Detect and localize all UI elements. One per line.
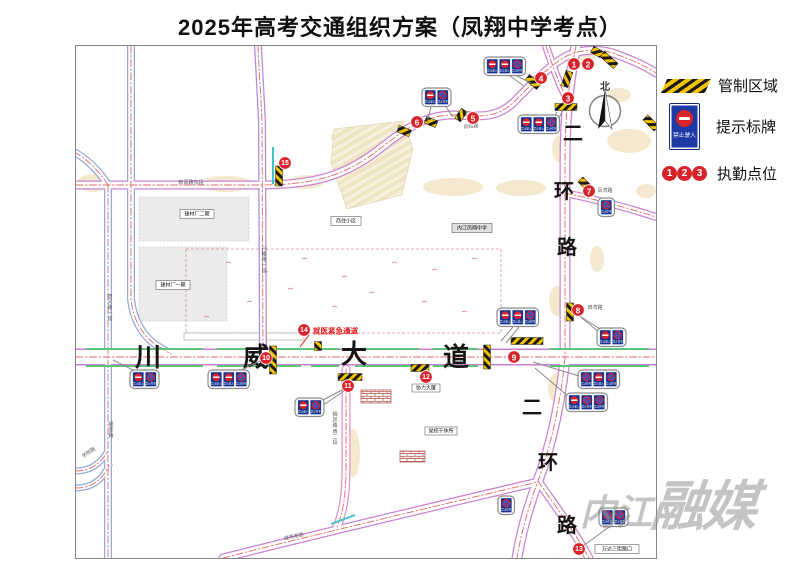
no-parking-sign-icon: 禁止停车 — [581, 395, 592, 410]
duty-point-sample-icons: 1 2 3 — [662, 166, 707, 181]
sign-caption-text: 禁止停车 — [525, 320, 536, 324]
ring-road-name-char: 二 — [522, 397, 542, 419]
duty-point-number: 7 — [587, 186, 592, 196]
compass: 北 — [590, 80, 621, 129]
no-entry-sign-icon: 禁止驶入 — [533, 117, 544, 132]
no-entry-sign-icon: 禁止驶入 — [669, 103, 700, 150]
legend: 管制区域 禁止驶入 提示标牌 1 2 3 执勤点位 — [660, 45, 800, 245]
avenue-name-char: 川 — [135, 342, 161, 372]
no-parking-sign-icon: 禁止停车 — [501, 498, 512, 513]
place-label-text: 党校干休所 — [428, 427, 453, 434]
terrain-mark — [369, 292, 374, 293]
duty-point-10: 10 — [260, 352, 273, 365]
sign-leader-line — [583, 527, 609, 546]
sign-caption-text: 禁止停车 — [613, 340, 624, 344]
duty-point-number: 4 — [539, 73, 544, 83]
no-parking-sign-icon: 禁止停车 — [546, 117, 557, 132]
no-entry-caption: 禁止驶入 — [671, 130, 699, 139]
no-parking-sign-icon: 禁止停车 — [606, 372, 617, 387]
sign-caption-text: 禁止停车 — [438, 100, 449, 104]
duty-point-number: 6 — [415, 117, 420, 127]
ring-road-name-char: 环 — [554, 181, 574, 203]
sign-caption-text: 禁止停车 — [512, 69, 523, 73]
emergency-route-text: 就医紧急通道 — [313, 326, 358, 336]
sign-caption-text: 禁止停车 — [311, 410, 322, 414]
watermark-large: 融媒 — [648, 462, 760, 541]
building-outline — [184, 333, 304, 340]
terrain-mark — [432, 269, 437, 270]
no-entry-sign-icon: 禁止驶入 — [512, 310, 523, 325]
no-entry-sign-icon: 禁止驶入 — [211, 372, 222, 387]
duty-point-13: 13 — [573, 543, 586, 556]
no-parking-sign-icon: 禁止停车 — [602, 510, 613, 525]
sign-leader-line — [510, 76, 524, 86]
duty-point-sample-1: 1 — [662, 166, 677, 181]
duty-point-6: 6 — [411, 116, 424, 129]
sign-caption-text: 禁止驶入 — [600, 340, 611, 344]
no-parking-sign-icon: 禁止停车 — [310, 400, 321, 415]
legend-item-control-area: 管制区域 — [660, 75, 778, 96]
control-hatch-bar — [511, 338, 543, 345]
roadside-area — [607, 129, 651, 153]
sign-caption-text: 禁止停车 — [146, 382, 157, 386]
legend-item-sign-board: 禁止驶入 提示标牌 — [660, 103, 776, 150]
road-label: 凤湾路 — [597, 187, 612, 194]
ring-road-name-char: 环 — [538, 452, 558, 474]
no-parking-sign-icon: 禁止停车 — [525, 310, 536, 325]
duty-point-11: 11 — [342, 380, 355, 393]
duty-point-number: 8 — [576, 305, 581, 315]
sign-caption-text: 禁止停车 — [606, 382, 617, 386]
duty-point-number: 9 — [512, 352, 517, 362]
no-entry-sign-icon: 禁止驶入 — [425, 90, 436, 105]
place-label-text: 建材厂一期 — [160, 281, 185, 288]
sign-caption-text: 禁止停车 — [236, 382, 247, 386]
road-label: 智义路一段 — [107, 293, 112, 322]
place-label-text: 建材厂二期 — [184, 210, 209, 217]
terrain-mark — [422, 301, 427, 302]
place-label-text: 商住小区 — [336, 217, 356, 224]
page-title: 2025年高考交通组织方案（凤翔中学考点） — [0, 10, 800, 42]
no-entry-bar-icon — [679, 117, 690, 121]
no-parking-sign-icon: 禁止停车 — [612, 330, 623, 345]
sign-caption-text: 禁止停车 — [601, 210, 612, 214]
compass-north-label: 北 — [600, 80, 610, 93]
sign-caption-text: 禁止停车 — [546, 127, 557, 131]
control-hatch-bar — [338, 374, 362, 381]
no-parking-sign-icon: 禁止停车 — [145, 372, 156, 387]
sign-caption-text: 禁止停车 — [602, 520, 613, 524]
no-entry-sign-icon: 禁止驶入 — [487, 59, 498, 74]
sign-caption-text: 禁止停车 — [501, 508, 512, 512]
road-label: 田湾路 — [587, 304, 602, 311]
sign-caption-text: 禁止驶入 — [500, 69, 511, 73]
road-label: 银家路 — [108, 421, 113, 439]
building-brick — [400, 451, 425, 462]
legend-label-control-area: 管制区域 — [718, 75, 778, 96]
traffic-map: 川威大道二环路二环路新凤路东段凤鸣路凤湾路田湾路峰鸣老路学院路智义路一段兴隆路一… — [76, 46, 656, 558]
place-label-text: 内江凤翔中学 — [457, 224, 487, 231]
no-parking-sign-icon: 禁止停车 — [601, 200, 612, 215]
road-label: 新凤路东段 — [178, 179, 203, 186]
control-hatch-bar — [555, 104, 577, 111]
legend-label-sign-board: 提示标牌 — [716, 116, 776, 137]
no-entry-sign-icon: 禁止驶入 — [298, 400, 309, 415]
avenue-name-char: 大 — [341, 339, 367, 369]
no-entry-sign-icon: 禁止驶入 — [521, 117, 532, 132]
duty-point-15: 15 — [279, 157, 292, 170]
no-parking-sign-icon: 禁止停车 — [437, 90, 448, 105]
terrain-mark — [472, 258, 477, 259]
road-label: 学院路 — [81, 445, 97, 459]
map-frame: 川威大道二环路二环路新凤路东段凤鸣路凤湾路田湾路峰鸣老路学院路智义路一段兴隆路一… — [75, 45, 657, 559]
terrain-mark — [332, 306, 337, 307]
legend-item-duty-points: 1 2 3 执勤点位 — [660, 163, 777, 184]
sign-caption-text: 禁止驶入 — [513, 320, 524, 324]
traffic-plan-page: 2025年高考交通组织方案（凤翔中学考点） 川威大道二环路二环路新凤路东段凤鸣路… — [0, 0, 800, 573]
duty-point-1: 1 — [568, 58, 581, 71]
duty-point-7: 7 — [583, 185, 596, 198]
duty-point-number: 5 — [471, 113, 476, 123]
no-entry-sign-icon: 禁止驶入 — [569, 395, 580, 410]
sign-caption-text: 禁止驶入 — [133, 382, 144, 386]
duty-point-number: 10 — [262, 355, 270, 362]
duty-point-number: 15 — [281, 160, 289, 167]
avenue-name-char: 道 — [443, 342, 469, 372]
no-parking-sign-icon: 禁止停车 — [614, 510, 625, 525]
legend-label-duty-points: 执勤点位 — [717, 163, 777, 184]
control-hatch-bar — [276, 166, 283, 186]
duty-point-number: 1 — [572, 59, 577, 69]
no-entry-sign-icon: 禁止驶入 — [593, 372, 604, 387]
ring-road-name-char: 路 — [557, 513, 578, 537]
terrain-mark — [462, 311, 467, 312]
roadside-area — [590, 246, 604, 272]
dashed-boundary-area — [186, 249, 501, 333]
place-label-text: 万达三街路口 — [602, 545, 632, 552]
sign-caption-text: 禁止驶入 — [500, 320, 511, 324]
sign-caption-text: 禁止驶入 — [211, 382, 222, 386]
duty-point-number: 3 — [566, 93, 571, 103]
no-entry-circle-icon — [676, 110, 693, 127]
sign-caption-text: 禁止驶入 — [425, 100, 436, 104]
roadside-area — [496, 180, 546, 196]
sign-caption-text: 禁止停车 — [594, 405, 605, 409]
sign-caption-text: 禁止停车 — [581, 382, 592, 386]
sign-caption-text: 禁止停车 — [615, 520, 626, 524]
duty-point-3: 3 — [562, 92, 575, 105]
control-hatch-bar — [484, 345, 491, 369]
sign-caption-text: 禁止驶入 — [521, 127, 532, 131]
control-hatch-bar — [315, 342, 322, 351]
terrain-mark — [342, 276, 347, 277]
place-label-text: 协力大厦 — [416, 384, 436, 391]
duty-point-9: 9 — [508, 351, 521, 364]
sign-caption-text: 禁止驶入 — [534, 127, 545, 131]
no-parking-sign-icon: 禁止停车 — [512, 59, 523, 74]
control-hatch-bar — [643, 115, 656, 131]
duty-point-number: 11 — [344, 383, 352, 390]
duty-point-4: 4 — [535, 72, 548, 85]
terrain-mark — [247, 301, 252, 302]
control-area-hatch-icon — [661, 79, 711, 93]
sign-caption-text: 禁止驶入 — [569, 405, 580, 409]
ring-road-name-char: 二 — [563, 123, 583, 145]
sign-caption-text: 禁止驶入 — [487, 69, 498, 73]
duty-point-12: 12 — [420, 371, 433, 384]
no-parking-sign-icon: 禁止停车 — [236, 372, 247, 387]
roadside-area — [423, 178, 483, 196]
no-entry-sign-icon: 禁止驶入 — [499, 59, 510, 74]
terrain-mark — [302, 258, 307, 259]
duty-point-sample-3: 3 — [692, 166, 707, 181]
duty-point-sample-2: 2 — [677, 166, 692, 181]
sign-caption-text: 禁止驶入 — [298, 410, 309, 414]
duty-point-14: 14 — [298, 324, 311, 337]
sign-caption-text: 禁止驶入 — [594, 382, 605, 386]
duty-point-2: 2 — [582, 58, 595, 71]
building-brick — [361, 390, 391, 403]
sign-caption-text: 禁止停车 — [582, 405, 593, 409]
no-entry-sign-icon: 禁止驶入 — [500, 310, 511, 325]
roadside-area — [636, 184, 656, 198]
gray-block-area — [139, 197, 249, 241]
duty-point-number: 13 — [575, 546, 583, 553]
road-label: 兴隆路一段 — [261, 245, 266, 274]
no-parking-sign-icon: 禁止停车 — [581, 372, 592, 387]
duty-point-number: 14 — [300, 327, 308, 334]
road-label: 栖凤路西二段 — [332, 411, 337, 446]
no-entry-sign-icon: 禁止驶入 — [223, 372, 234, 387]
ring-road-name-char: 路 — [557, 235, 578, 259]
terrain-mark — [392, 262, 397, 263]
terrain-mark — [288, 288, 293, 289]
no-entry-sign-icon: 禁止驶入 — [133, 372, 144, 387]
duty-point-number: 12 — [422, 374, 430, 381]
no-entry-sign-icon: 禁止驶入 — [600, 330, 611, 345]
duty-point-8: 8 — [572, 304, 585, 317]
sign-caption-text: 禁止驶入 — [224, 382, 235, 386]
no-parking-sign-icon: 禁止停车 — [594, 395, 605, 410]
sign-leader-line — [577, 314, 599, 332]
duty-point-5: 5 — [467, 112, 480, 125]
duty-point-number: 2 — [586, 59, 591, 69]
